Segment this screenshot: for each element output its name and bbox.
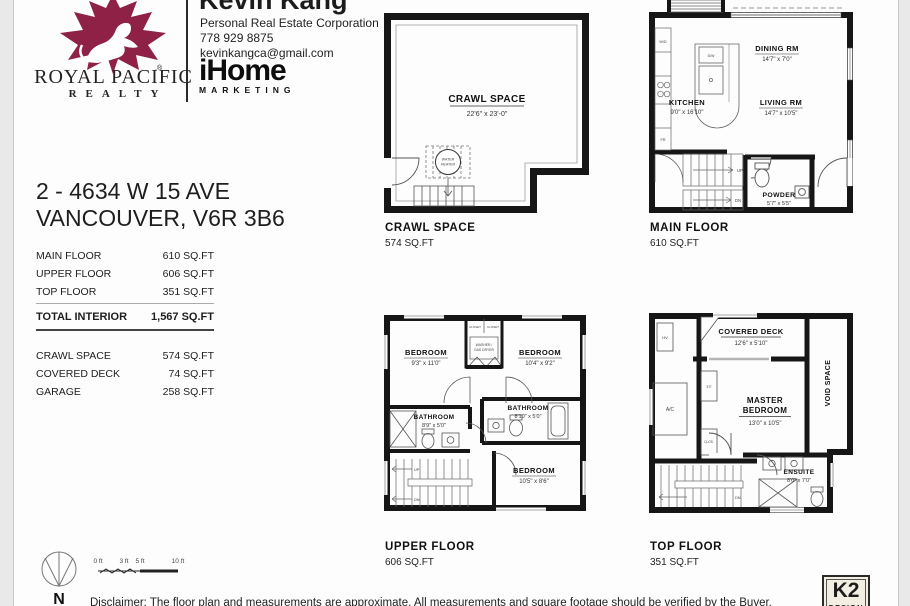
scale-tick-10: 10 ft (172, 558, 185, 565)
flyer-canvas: .® ROYAL PACIFIC REALTY Kevin Kang Perso… (0, 0, 910, 606)
mech-fixtures (653, 323, 717, 455)
dn-label: DN (735, 198, 741, 203)
table-divider (36, 303, 214, 304)
north-compass: N (35, 549, 83, 606)
up-label: UP (737, 168, 743, 173)
area-value: 74 SQ.FT (168, 368, 214, 380)
area-table: MAIN FLOOR 610 SQ.FT UPPER FLOOR 606 SQ.… (36, 247, 214, 401)
crawl-room-label: CRAWL SPACE (448, 94, 525, 105)
ihome-sub: MARKETING (199, 85, 295, 95)
top-stairs (659, 465, 743, 507)
closet-label: CLOSET (487, 325, 499, 329)
bedroom2-dims: 10'4" x 9'2" (525, 361, 555, 367)
area-row: CRAWL SPACE 574 SQ.FT (36, 347, 214, 365)
upper-caption: UPPER FLOOR (385, 541, 475, 553)
kitchen-label: KITCHEN (669, 98, 705, 107)
top-area: 351 SQ.FT (650, 557, 699, 568)
hv-label: HV (662, 335, 668, 340)
dining-label: DINING RM (755, 44, 799, 53)
top-caption: TOP FLOOR (650, 541, 722, 553)
crawl-stairs-lower (414, 178, 474, 206)
scale-tick-5: 5 ft (135, 558, 144, 565)
area-label: UPPER FLOOR (36, 268, 111, 280)
bedroom3-dims: 10'5" x 8'6" (519, 479, 549, 485)
main-area: 610 SQ.FT (650, 238, 699, 249)
living-label: LIVING RM (760, 98, 802, 107)
kitchen-dims: 9'0" x 16'10" (671, 110, 704, 116)
flyer-page: .® ROYAL PACIFIC REALTY Kevin Kang Perso… (13, 0, 899, 606)
gas-dryer-label: GAS DRYER (474, 348, 494, 352)
crawl-area: 574 SQ.FT (385, 238, 434, 249)
ensuite-label: ENSUITE (784, 469, 815, 476)
agent-title: Personal Real Estate Corporation (200, 16, 379, 31)
area-value: 574 SQ.FT (163, 350, 214, 362)
powder-label: POWDER (763, 192, 796, 199)
main-floor-floorplan: W/D FR D/W UP DN (647, 0, 855, 216)
dn-label: DN (414, 498, 420, 502)
scale-bar-line (98, 569, 178, 573)
agent-phone: 778 929 8875 (200, 31, 379, 46)
area-label: TOP FLOOR (36, 286, 96, 298)
area-value: 606 SQ.FT (163, 268, 214, 280)
area-value: 258 SQ.FT (163, 386, 214, 398)
master-label-2: BEDROOM (743, 406, 788, 415)
svg-text:HEATER: HEATER (441, 163, 456, 167)
ihome-wordmark: iHome (199, 57, 295, 85)
master-label-1: MASTER (747, 396, 783, 405)
brand-name: ROYAL PACIFIC (31, 66, 196, 89)
area-row: UPPER FLOOR 606 SQ.FT (36, 265, 214, 283)
kitchen-counter (655, 28, 671, 150)
listing-address: 2 - 4634 W 15 AVE VANCOUVER, V6R 3B6 (36, 178, 285, 232)
crawl-room-dims: 22'6" x 23'-0" (467, 111, 508, 118)
svg-text:WATER: WATER (442, 158, 455, 162)
main-stairs (655, 154, 743, 210)
bath1-dims: 8'9" x 5'0" (422, 423, 446, 429)
k2-wordmark: K2 (824, 579, 868, 603)
dishwasher-label: D/W (708, 54, 716, 58)
deck-dims: 12'6" x 5'10" (735, 341, 768, 347)
ihome-marketing-logo: iHome MARKETING (199, 57, 295, 95)
crawl-door (384, 158, 419, 188)
header-divider (186, 0, 188, 102)
fridge-label: FR (660, 138, 665, 142)
area-total-row: TOTAL INTERIOR 1,567 SQ.FT (36, 307, 214, 326)
agent-name: Kevin Kang (199, 0, 348, 16)
area-row: GARAGE 258 SQ.FT (36, 383, 214, 401)
k2-design-logo: K2 DESIGN (822, 575, 870, 606)
ensuite-dims: 8'0" x 7'0" (787, 478, 811, 484)
washer-dryer-label: W/D (659, 40, 667, 44)
area-value: 610 SQ.FT (163, 250, 214, 262)
up-label: UP (414, 468, 420, 472)
bedroom1-dims: 9'3" x 11'0" (411, 361, 440, 367)
area-row: MAIN FLOOR 610 SQ.FT (36, 247, 214, 265)
bedroom2-label: BEDROOM (519, 348, 561, 357)
entry-door (818, 158, 853, 187)
void-space-label: VOID SPACE (825, 360, 832, 407)
total-label: TOTAL INTERIOR (36, 311, 127, 323)
crawl-space-floorplan: WATER HEATER CRAWL SPACE 22'6" x 23'-0" (384, 10, 589, 215)
scale-tick-0: 0 ft (93, 558, 102, 565)
water-heater: WATER HEATER (436, 150, 461, 175)
living-dims: 14'7" x 10'5" (765, 111, 798, 117)
maple-leaf-icon: .® (60, 0, 166, 74)
master-dims: 13'0" x 10'5" (749, 421, 782, 427)
scale-tick-3: 3 ft (119, 558, 128, 565)
top-floor-floorplan: HV A/C 3'0" CLOS. DN COVERED DE (647, 311, 855, 515)
upper-area: 606 SQ.FT (385, 557, 434, 568)
address-line2: VANCOUVER, V6R 3B6 (36, 205, 285, 232)
bath2-dims: 8'10" x 5'0" (514, 414, 541, 420)
area-label: COVERED DECK (36, 368, 120, 380)
ac-label: A/C (666, 407, 675, 413)
north-label: N (53, 591, 65, 606)
deck-rail-door (701, 317, 769, 362)
area-row: TOP FLOOR 351 SQ.FT (36, 283, 214, 301)
bath1-label: BATHROOM (414, 414, 455, 421)
area-label: MAIN FLOOR (36, 250, 101, 262)
scale-bar: 0 ft 3 ft 5 ft 10 ft (90, 553, 205, 585)
dining-dims: 14'7" x 7'0" (762, 57, 792, 63)
dn-label: DN (735, 496, 741, 500)
area-label: CRAWL SPACE (36, 350, 111, 362)
entry-porch (667, 0, 725, 12)
upper-stairs (392, 459, 472, 507)
deck-label: COVERED DECK (718, 327, 783, 336)
powder-dims: 5'7" x 5'5" (767, 201, 791, 207)
area-value: 351 SQ.FT (163, 286, 214, 298)
area-label: GARAGE (36, 386, 81, 398)
address-line1: 2 - 4634 W 15 AVE (36, 178, 285, 205)
main-caption: MAIN FLOOR (650, 222, 729, 234)
bath2-label: BATHROOM (508, 405, 549, 412)
closet-label: CLOSET (469, 325, 481, 329)
brand-sub: REALTY (31, 88, 196, 100)
bedroom1-label: BEDROOM (405, 348, 447, 357)
disclaimer-text: Disclaimer: The floor plan and measureme… (90, 597, 820, 606)
washer-label: WASHER / (476, 343, 493, 347)
upper-floor-floorplan: CLOSET CLOSET WASHER / GAS DRYER (382, 311, 588, 515)
total-value: 1,567 SQ.FT (151, 311, 214, 323)
closet-dim-label: 3'0" (706, 385, 711, 389)
crawl-caption: CRAWL SPACE (385, 222, 476, 234)
area-row: COVERED DECK 74 SQ.FT (36, 365, 214, 383)
closet-label: CLOS. (704, 440, 714, 444)
bedroom3-label: BEDROOM (513, 466, 555, 475)
